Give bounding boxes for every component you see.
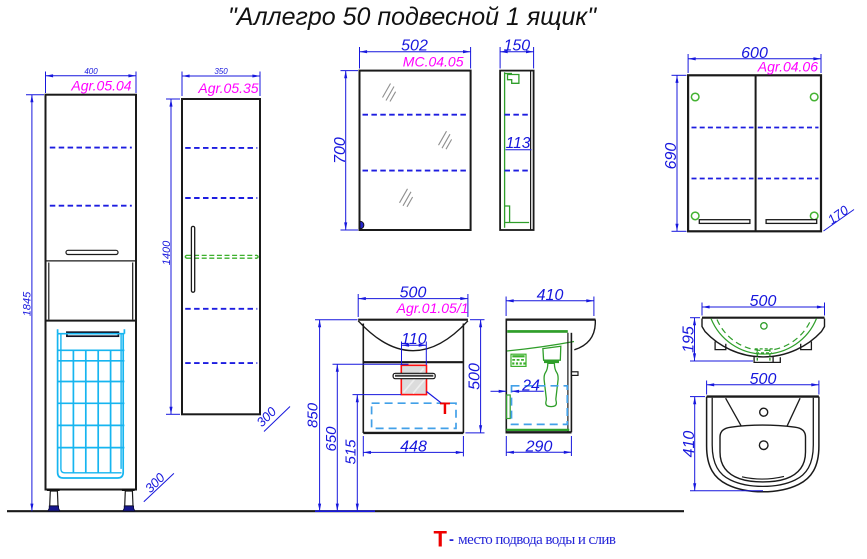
svg-text:- место подвода воды и слив: - место подвода воды и слив xyxy=(449,531,616,548)
svg-text:500: 500 xyxy=(750,371,777,388)
svg-text:"Аллегро 50 подвесной 1 ящик": "Аллегро 50 подвесной 1 ящик" xyxy=(228,3,597,31)
svg-text:150: 150 xyxy=(503,38,530,55)
svg-text:110: 110 xyxy=(401,331,427,348)
svg-text:Т: Т xyxy=(434,527,448,552)
svg-text:195: 195 xyxy=(681,326,698,353)
svg-text:24: 24 xyxy=(521,378,540,395)
svg-text:Agr.05.35: Agr.05.35 xyxy=(197,80,258,96)
svg-text:515: 515 xyxy=(342,439,359,465)
svg-text:690: 690 xyxy=(663,143,680,170)
svg-text:410: 410 xyxy=(681,431,698,458)
svg-text:448: 448 xyxy=(400,439,427,456)
svg-text:350: 350 xyxy=(214,67,228,76)
svg-text:400: 400 xyxy=(84,67,98,76)
svg-text:1845: 1845 xyxy=(22,291,34,316)
svg-text:700: 700 xyxy=(332,137,349,164)
svg-text:500: 500 xyxy=(467,363,484,390)
svg-text:502: 502 xyxy=(401,38,428,55)
svg-text:290: 290 xyxy=(525,438,553,455)
svg-text:410: 410 xyxy=(537,287,564,304)
svg-text:Agr.04.06: Agr.04.06 xyxy=(757,59,818,75)
svg-text:Agr.05.04: Agr.05.04 xyxy=(70,78,131,94)
svg-text:500: 500 xyxy=(750,293,777,310)
svg-text:850: 850 xyxy=(305,402,322,428)
svg-text:650: 650 xyxy=(323,426,340,452)
svg-text:Т: Т xyxy=(440,399,451,418)
svg-text:МС.04.05: МС.04.05 xyxy=(403,54,464,70)
svg-text:Agr.01.05/1: Agr.01.05/1 xyxy=(396,300,469,316)
svg-text:1400: 1400 xyxy=(161,240,173,265)
